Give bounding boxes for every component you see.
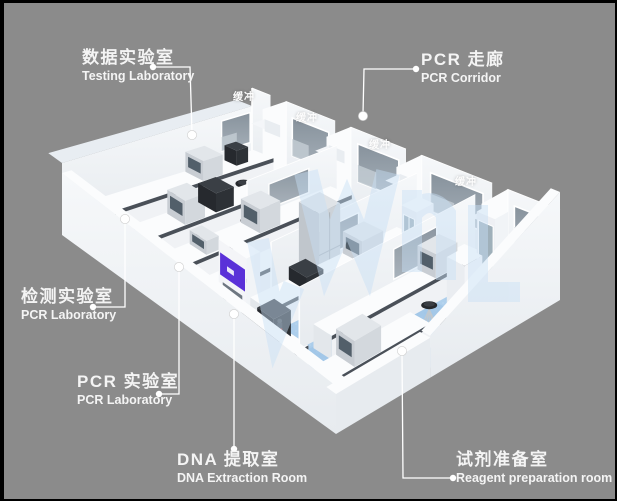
label-pcr-laboratory: PCR 实验室 PCR Laboratory — [77, 372, 179, 407]
label-en: PCR Laboratory — [77, 393, 179, 407]
label-en: Reagent preparation room — [456, 471, 612, 485]
label-zh: PCR 走廊 — [421, 50, 505, 70]
label-zh: 检测实验室 — [21, 287, 116, 307]
label-reagent-preparation-room: 试剂准备室 Reagent preparation room — [456, 450, 612, 485]
label-dna-extraction-room: DNA 提取室 DNA Extraction Room — [177, 450, 307, 485]
label-en: Testing Laboratory — [82, 69, 194, 83]
label-zh: 数据实验室 — [82, 48, 194, 68]
buffer-room-label: 缓冲 — [455, 173, 477, 188]
lab-floorplan-figure: 数据实验室 Testing Laboratory PCR 走廊 PCR Corr… — [0, 0, 617, 501]
label-en: PCR Corridor — [421, 71, 505, 85]
buffer-room-label: 缓冲 — [369, 136, 391, 151]
label-testing-laboratory: 数据实验室 Testing Laboratory — [82, 48, 194, 83]
label-pcr-corridor: PCR 走廊 PCR Corridor — [421, 50, 505, 85]
buffer-room-label: 缓冲 — [296, 109, 318, 124]
label-zh: DNA 提取室 — [177, 450, 307, 470]
label-zh: PCR 实验室 — [77, 372, 179, 392]
label-zh: 试剂准备室 — [456, 450, 612, 470]
label-detection-laboratory: 检测实验室 PCR Laboratory — [21, 287, 116, 322]
label-en: PCR Laboratory — [21, 308, 116, 322]
buffer-room-label: 缓冲 — [233, 88, 255, 103]
label-en: DNA Extraction Room — [177, 471, 307, 485]
